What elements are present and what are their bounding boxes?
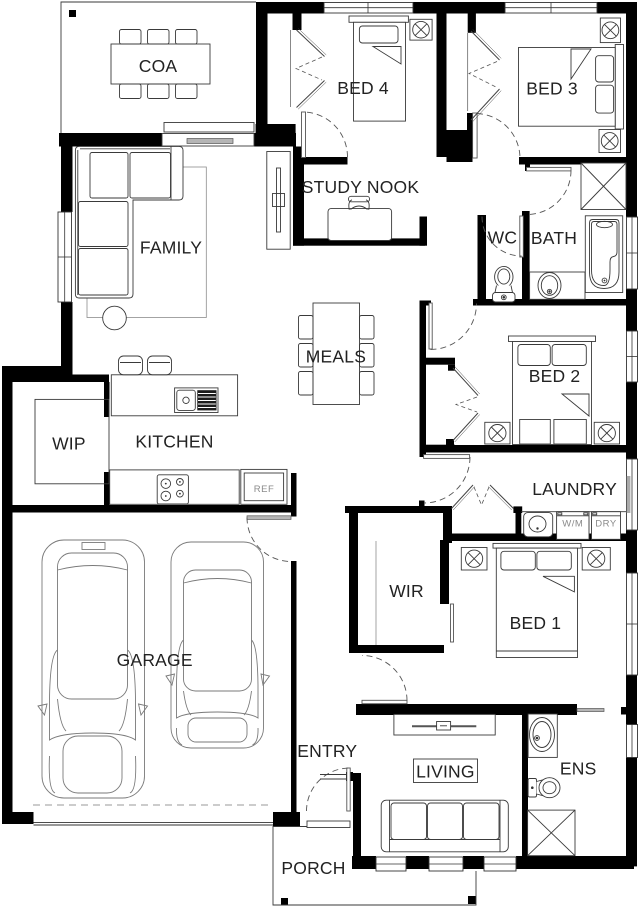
svg-text:KITCHEN: KITCHEN: [135, 432, 213, 452]
svg-text:DRY: DRY: [595, 519, 617, 530]
svg-text:BED 2: BED 2: [529, 366, 581, 386]
svg-text:W/M: W/M: [562, 519, 583, 530]
svg-text:BATH: BATH: [531, 228, 577, 248]
svg-text:REF: REF: [254, 484, 275, 495]
svg-text:GARAGE: GARAGE: [117, 650, 193, 670]
svg-text:PORCH: PORCH: [281, 858, 345, 878]
svg-text:COA: COA: [139, 56, 178, 76]
svg-text:LAUNDRY: LAUNDRY: [532, 479, 617, 499]
svg-text:WIR: WIR: [389, 581, 424, 601]
svg-text:LIVING: LIVING: [416, 762, 475, 782]
svg-text:BED 3: BED 3: [526, 79, 578, 99]
svg-text:BED 4: BED 4: [337, 78, 389, 98]
svg-text:BED 1: BED 1: [510, 613, 562, 633]
svg-text:FAMILY: FAMILY: [140, 238, 202, 258]
svg-text:WC: WC: [488, 228, 518, 248]
svg-text:ENS: ENS: [560, 759, 597, 779]
svg-text:ENTRY: ENTRY: [297, 741, 357, 761]
svg-text:STUDY NOOK: STUDY NOOK: [302, 177, 420, 197]
svg-text:MEALS: MEALS: [306, 347, 366, 367]
svg-text:WIP: WIP: [52, 434, 86, 454]
